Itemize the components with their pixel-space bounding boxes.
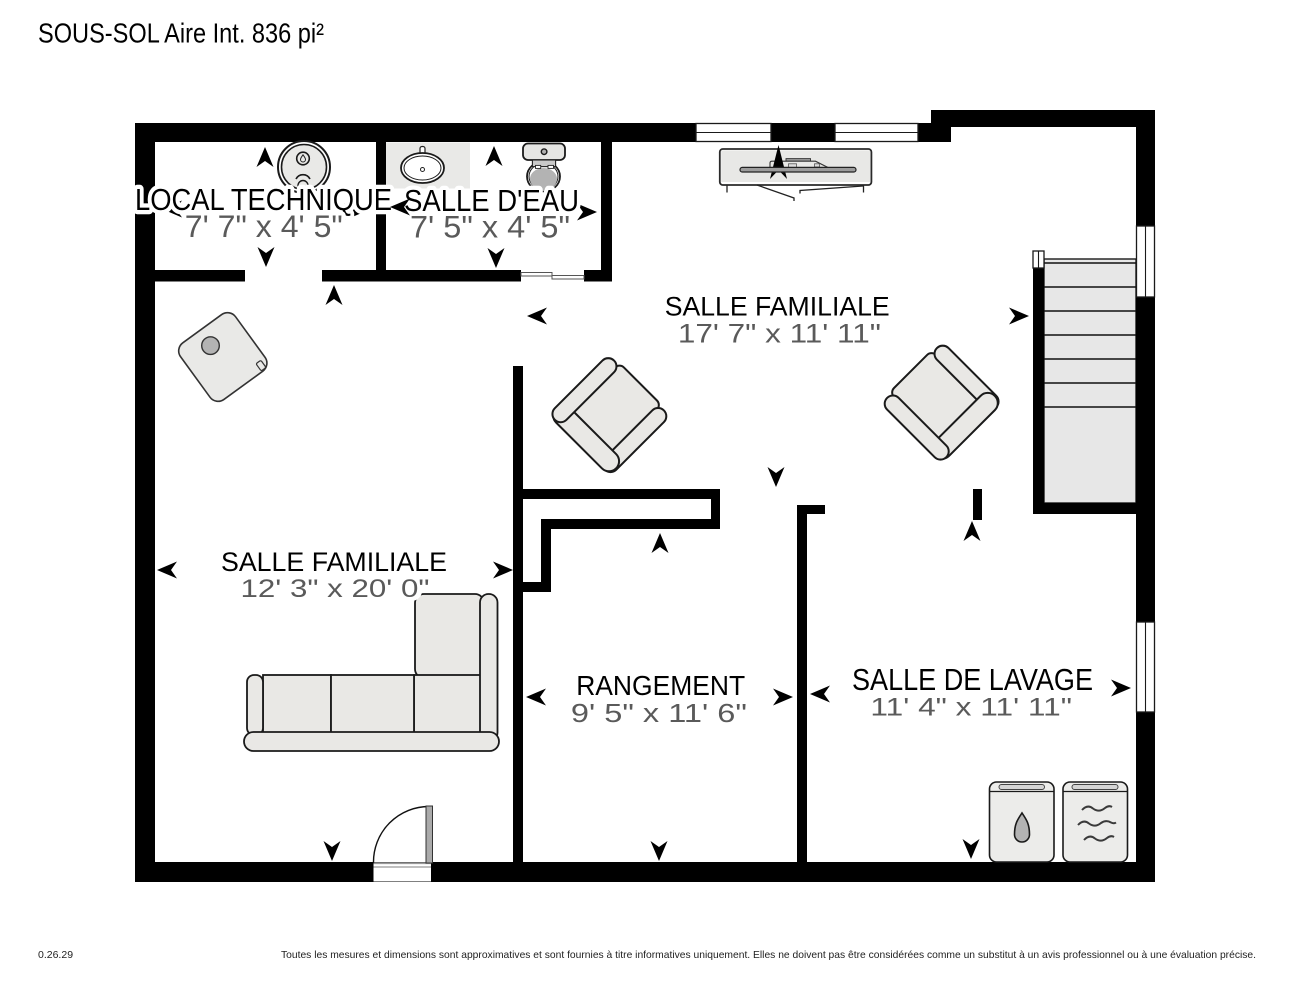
svg-text:0.26.29: 0.26.29 — [38, 949, 73, 961]
svg-text:SALLE FAMILIALE: SALLE FAMILIALE — [221, 547, 447, 577]
svg-text:7' 5" x 4' 5": 7' 5" x 4' 5" — [410, 209, 570, 245]
svg-text:17' 7" x 11' 11": 17' 7" x 11' 11" — [678, 319, 881, 349]
svg-text:SALLE FAMILIALE: SALLE FAMILIALE — [665, 291, 890, 321]
svg-text:12' 3" x 20' 0": 12' 3" x 20' 0" — [241, 575, 430, 603]
svg-text:11' 4" x 11' 11": 11' 4" x 11' 11" — [870, 693, 1072, 721]
svg-text:SALLE DE LAVAGE: SALLE DE LAVAGE — [852, 663, 1093, 697]
svg-text:9' 5" x 11' 6": 9' 5" x 11' 6" — [571, 698, 747, 728]
svg-text:7' 7" x 4' 5": 7' 7" x 4' 5" — [185, 208, 343, 244]
svg-text:RANGEMENT: RANGEMENT — [576, 670, 745, 701]
svg-text:Toutes les mesures et dimensio: Toutes les mesures et dimensions sont ap… — [281, 949, 1256, 961]
svg-text:SOUS-SOL Aire Int. 836 pi²: SOUS-SOL Aire Int. 836 pi² — [38, 18, 324, 49]
